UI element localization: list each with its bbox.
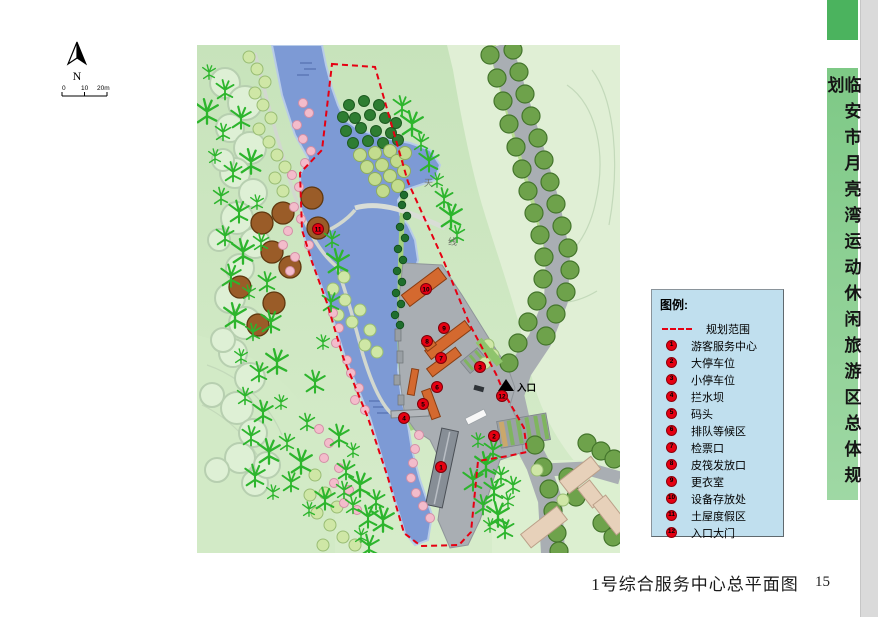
- tree: [320, 454, 329, 463]
- tree: [315, 425, 324, 434]
- tree: [394, 245, 402, 253]
- tree: [537, 327, 555, 345]
- tree: [304, 489, 316, 501]
- tree: [351, 396, 360, 405]
- tree: [257, 99, 269, 111]
- tree: [369, 147, 382, 160]
- map-marker-7: 7: [436, 353, 447, 364]
- tree: [391, 311, 399, 319]
- tree: [243, 51, 255, 63]
- tree: [338, 271, 350, 283]
- plan-title: 临安市月亮湾运动休闲旅游区总体规划: [826, 68, 860, 500]
- legend-box: 图例: 规划范围 1游客服务中心2大停车位3小停车位4拦水坝5码头6排队等候区7…: [651, 289, 784, 537]
- map-marker-9: 9: [439, 323, 450, 334]
- tree: [400, 191, 408, 199]
- scale-20: 20m: [97, 85, 110, 92]
- svg-text:10: 10: [422, 287, 430, 294]
- tree: [269, 172, 281, 184]
- tree: [279, 241, 288, 250]
- legend-item-label: 大停车位: [691, 355, 735, 371]
- map-marker-1: 1: [436, 462, 447, 473]
- tree: [519, 313, 537, 331]
- legend-items: 1游客服务中心2大停车位3小停车位4拦水坝5码头6排队等候区7检票口8皮筏发放口…: [660, 337, 775, 541]
- tree: [392, 180, 405, 193]
- boundary-dash-icon: [662, 328, 692, 330]
- map-marker-2: 2: [489, 431, 500, 442]
- tree: [500, 354, 518, 372]
- svg-text:6: 6: [435, 385, 439, 392]
- tree: [288, 171, 297, 180]
- page-number: 15: [815, 574, 830, 591]
- tree: [359, 96, 370, 107]
- legend-item-label: 土屋度假区: [691, 508, 746, 524]
- tree: [376, 159, 389, 172]
- tree: [284, 227, 293, 236]
- green-header-block: [827, 0, 858, 40]
- tree: [341, 126, 352, 137]
- svg-text:8: 8: [425, 339, 429, 346]
- tree: [307, 147, 316, 156]
- water-dam: [391, 409, 429, 418]
- tree: [409, 459, 418, 468]
- legend-number-badge: 4: [666, 391, 677, 402]
- tree: [398, 278, 406, 286]
- legend-item-label: 小停车位: [691, 372, 735, 388]
- tree: [509, 334, 527, 352]
- road-name-char: 天: [424, 178, 433, 188]
- tree: [354, 304, 366, 316]
- tree: [265, 112, 277, 124]
- tree: [519, 182, 537, 200]
- tree: [513, 160, 531, 178]
- tree: [305, 109, 314, 118]
- tree: [251, 212, 273, 234]
- entrance-label: 入口: [516, 383, 536, 394]
- legend-item-row: 12入口大门: [660, 524, 775, 541]
- tree: [541, 173, 559, 191]
- scale-line: [62, 92, 107, 96]
- tree: [251, 63, 263, 75]
- legend-number-badge: 10: [666, 493, 677, 504]
- tree: [535, 151, 553, 169]
- tree: [507, 138, 525, 156]
- tree: [359, 339, 371, 351]
- tree: [396, 223, 404, 231]
- legend-item-row: 6排队等候区: [660, 422, 775, 439]
- figure-caption: 1号综合服务中心总平面图: [585, 570, 805, 595]
- legend-item-row: 7检票口: [660, 439, 775, 456]
- legend-item-row: 1游客服务中心: [660, 337, 775, 354]
- map-marker-8: 8: [422, 336, 433, 347]
- tree: [526, 436, 544, 454]
- north-label: N: [73, 69, 82, 83]
- tree: [299, 135, 308, 144]
- tree: [337, 531, 349, 543]
- legend-item-label: 规划范围: [706, 321, 750, 337]
- scale-10: 10: [81, 85, 89, 92]
- legend-number-badge: 5: [666, 408, 677, 419]
- tree: [557, 494, 569, 506]
- legend-item-label: 码头: [691, 406, 713, 422]
- tree: [354, 149, 367, 162]
- legend-item-row: 4拦水坝: [660, 388, 775, 405]
- svg-text:3: 3: [478, 365, 482, 372]
- legend-number-badge: 1: [666, 340, 677, 351]
- legend-number-badge: 11: [666, 510, 677, 521]
- tree: [559, 239, 577, 257]
- tree: [291, 253, 300, 262]
- tree: [356, 123, 367, 134]
- tree: [301, 159, 310, 168]
- site-plan-map: 入口 天线 123456789101112: [197, 45, 620, 553]
- svg-text:1: 1: [439, 465, 443, 472]
- legend-item-row: 3小停车位: [660, 371, 775, 388]
- legend-number-badge: 2: [666, 357, 677, 368]
- map-marker-6: 6: [432, 382, 443, 393]
- legend-item-label: 排队等候区: [691, 423, 746, 439]
- tree: [392, 289, 400, 297]
- tree: [525, 204, 543, 222]
- tree: [349, 539, 361, 551]
- tree: [553, 217, 571, 235]
- tree: [295, 183, 304, 192]
- svg-text:5: 5: [421, 402, 425, 409]
- tree: [363, 136, 374, 147]
- svg-text:12: 12: [498, 394, 506, 401]
- tree: [211, 328, 235, 352]
- legend-item-label: 检票口: [691, 440, 724, 456]
- tree: [364, 324, 376, 336]
- tree: [401, 234, 409, 242]
- tree: [330, 479, 339, 488]
- tree: [500, 115, 518, 133]
- tree: [488, 69, 506, 87]
- page-edge-strip: [860, 0, 878, 617]
- tree: [200, 383, 224, 407]
- road-name-char: 线: [448, 236, 457, 247]
- tree: [557, 283, 575, 301]
- north-arrow: N: [58, 40, 98, 86]
- tree: [324, 519, 336, 531]
- tree: [277, 185, 289, 197]
- tree: [396, 321, 404, 329]
- tree: [407, 474, 416, 483]
- legend-number-badge: 7: [666, 442, 677, 453]
- legend-title: 图例:: [660, 296, 775, 313]
- tree: [263, 136, 275, 148]
- legend-item-row: 10设备存放处: [660, 490, 775, 507]
- tree: [605, 450, 620, 468]
- tree: [253, 123, 265, 135]
- tree: [346, 316, 358, 328]
- legend-item-label: 更衣室: [691, 474, 724, 490]
- tree: [531, 464, 543, 476]
- map-marker-4: 4: [399, 413, 410, 424]
- tree: [361, 161, 374, 174]
- legend-item-label: 入口大门: [691, 525, 735, 541]
- tree: [338, 112, 349, 123]
- tree: [531, 226, 549, 244]
- north-arrow-right-half: [77, 42, 86, 64]
- tree: [516, 85, 534, 103]
- tree: [249, 87, 261, 99]
- legend-item-label: 设备存放处: [691, 491, 746, 507]
- tree: [205, 458, 229, 482]
- svg-text:7: 7: [439, 356, 443, 363]
- map-marker-11: 11: [313, 224, 324, 235]
- legend-number-badge: 12: [666, 527, 677, 538]
- tree: [365, 110, 376, 121]
- tree: [290, 203, 299, 212]
- scale-0: 0: [62, 85, 66, 92]
- tree: [504, 45, 522, 59]
- tree: [534, 270, 552, 288]
- legend-number-badge: 6: [666, 425, 677, 436]
- legend-item-row: 11土屋度假区: [660, 507, 775, 524]
- tree: [377, 185, 390, 198]
- tree: [325, 439, 334, 448]
- tree: [259, 76, 271, 88]
- legend-item-row: 9更衣室: [660, 473, 775, 490]
- tree: [510, 63, 528, 81]
- plan-sheet-page: 临安市月亮湾运动休闲旅游区总体规划 N 0 10 20m: [0, 0, 878, 617]
- legend-number-badge: 8: [666, 459, 677, 470]
- tree: [317, 539, 329, 551]
- legend-number-badge: 9: [666, 476, 677, 487]
- tree: [263, 292, 285, 314]
- tree: [339, 294, 351, 306]
- tree: [561, 261, 579, 279]
- legend-boundary-row: 规划范围: [660, 320, 775, 337]
- svg-text:4: 4: [402, 416, 406, 423]
- tree: [411, 445, 420, 454]
- legend-item-label: 皮筏发放口: [691, 457, 746, 473]
- tree: [426, 514, 435, 523]
- tree: [344, 100, 355, 111]
- tree: [419, 502, 428, 511]
- tree: [399, 256, 407, 264]
- legend-number-badge: 3: [666, 374, 677, 385]
- map-marker-3: 3: [475, 362, 486, 373]
- tree: [535, 248, 553, 266]
- tree: [540, 480, 558, 498]
- tree: [529, 129, 547, 147]
- map-marker-5: 5: [418, 399, 429, 410]
- tree: [301, 187, 323, 209]
- north-arrow-left-half: [68, 42, 77, 64]
- tree: [271, 149, 283, 161]
- tree: [481, 46, 499, 64]
- tree: [547, 195, 565, 213]
- svg-text:11: 11: [315, 227, 322, 234]
- tree: [348, 138, 359, 149]
- tree: [522, 107, 540, 125]
- tree: [371, 126, 382, 137]
- tree: [397, 300, 405, 308]
- scale-bar: 0 10 20m: [58, 82, 118, 102]
- svg-text:9: 9: [442, 326, 446, 333]
- tree: [286, 267, 295, 276]
- legend-item-label: 拦水坝: [691, 389, 724, 405]
- tree: [299, 99, 308, 108]
- tree: [403, 212, 411, 220]
- tree: [528, 292, 546, 310]
- tree: [293, 121, 302, 130]
- tree: [369, 173, 382, 186]
- legend-item-row: 8皮筏发放口: [660, 456, 775, 473]
- tree: [350, 113, 361, 124]
- map-marker-12: 12: [497, 391, 508, 402]
- tree: [412, 489, 421, 498]
- tree: [371, 346, 383, 358]
- legend-item-row: 5码头: [660, 405, 775, 422]
- legend-item-row: 2大停车位: [660, 354, 775, 371]
- map-marker-10: 10: [421, 284, 432, 295]
- tree: [415, 431, 424, 440]
- tree: [374, 100, 385, 111]
- legend-item-label: 游客服务中心: [691, 338, 757, 354]
- tree: [393, 267, 401, 275]
- tree: [398, 201, 406, 209]
- vertical-title-bar: 临安市月亮湾运动休闲旅游区总体规划: [827, 68, 858, 500]
- tree: [494, 92, 512, 110]
- svg-text:2: 2: [492, 434, 496, 441]
- tree: [547, 305, 565, 323]
